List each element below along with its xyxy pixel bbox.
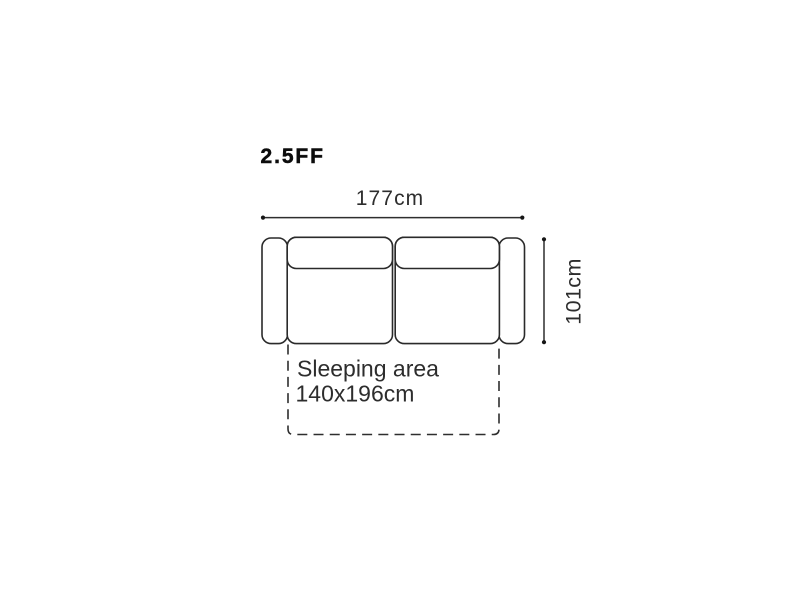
- svg-text:177cm: 177cm: [356, 187, 425, 210]
- svg-text:140x196cm: 140x196cm: [296, 381, 415, 407]
- svg-text:101cm: 101cm: [561, 258, 585, 325]
- svg-text:Sleeping area: Sleeping area: [297, 356, 439, 382]
- svg-text:2.5FF: 2.5FF: [261, 145, 325, 168]
